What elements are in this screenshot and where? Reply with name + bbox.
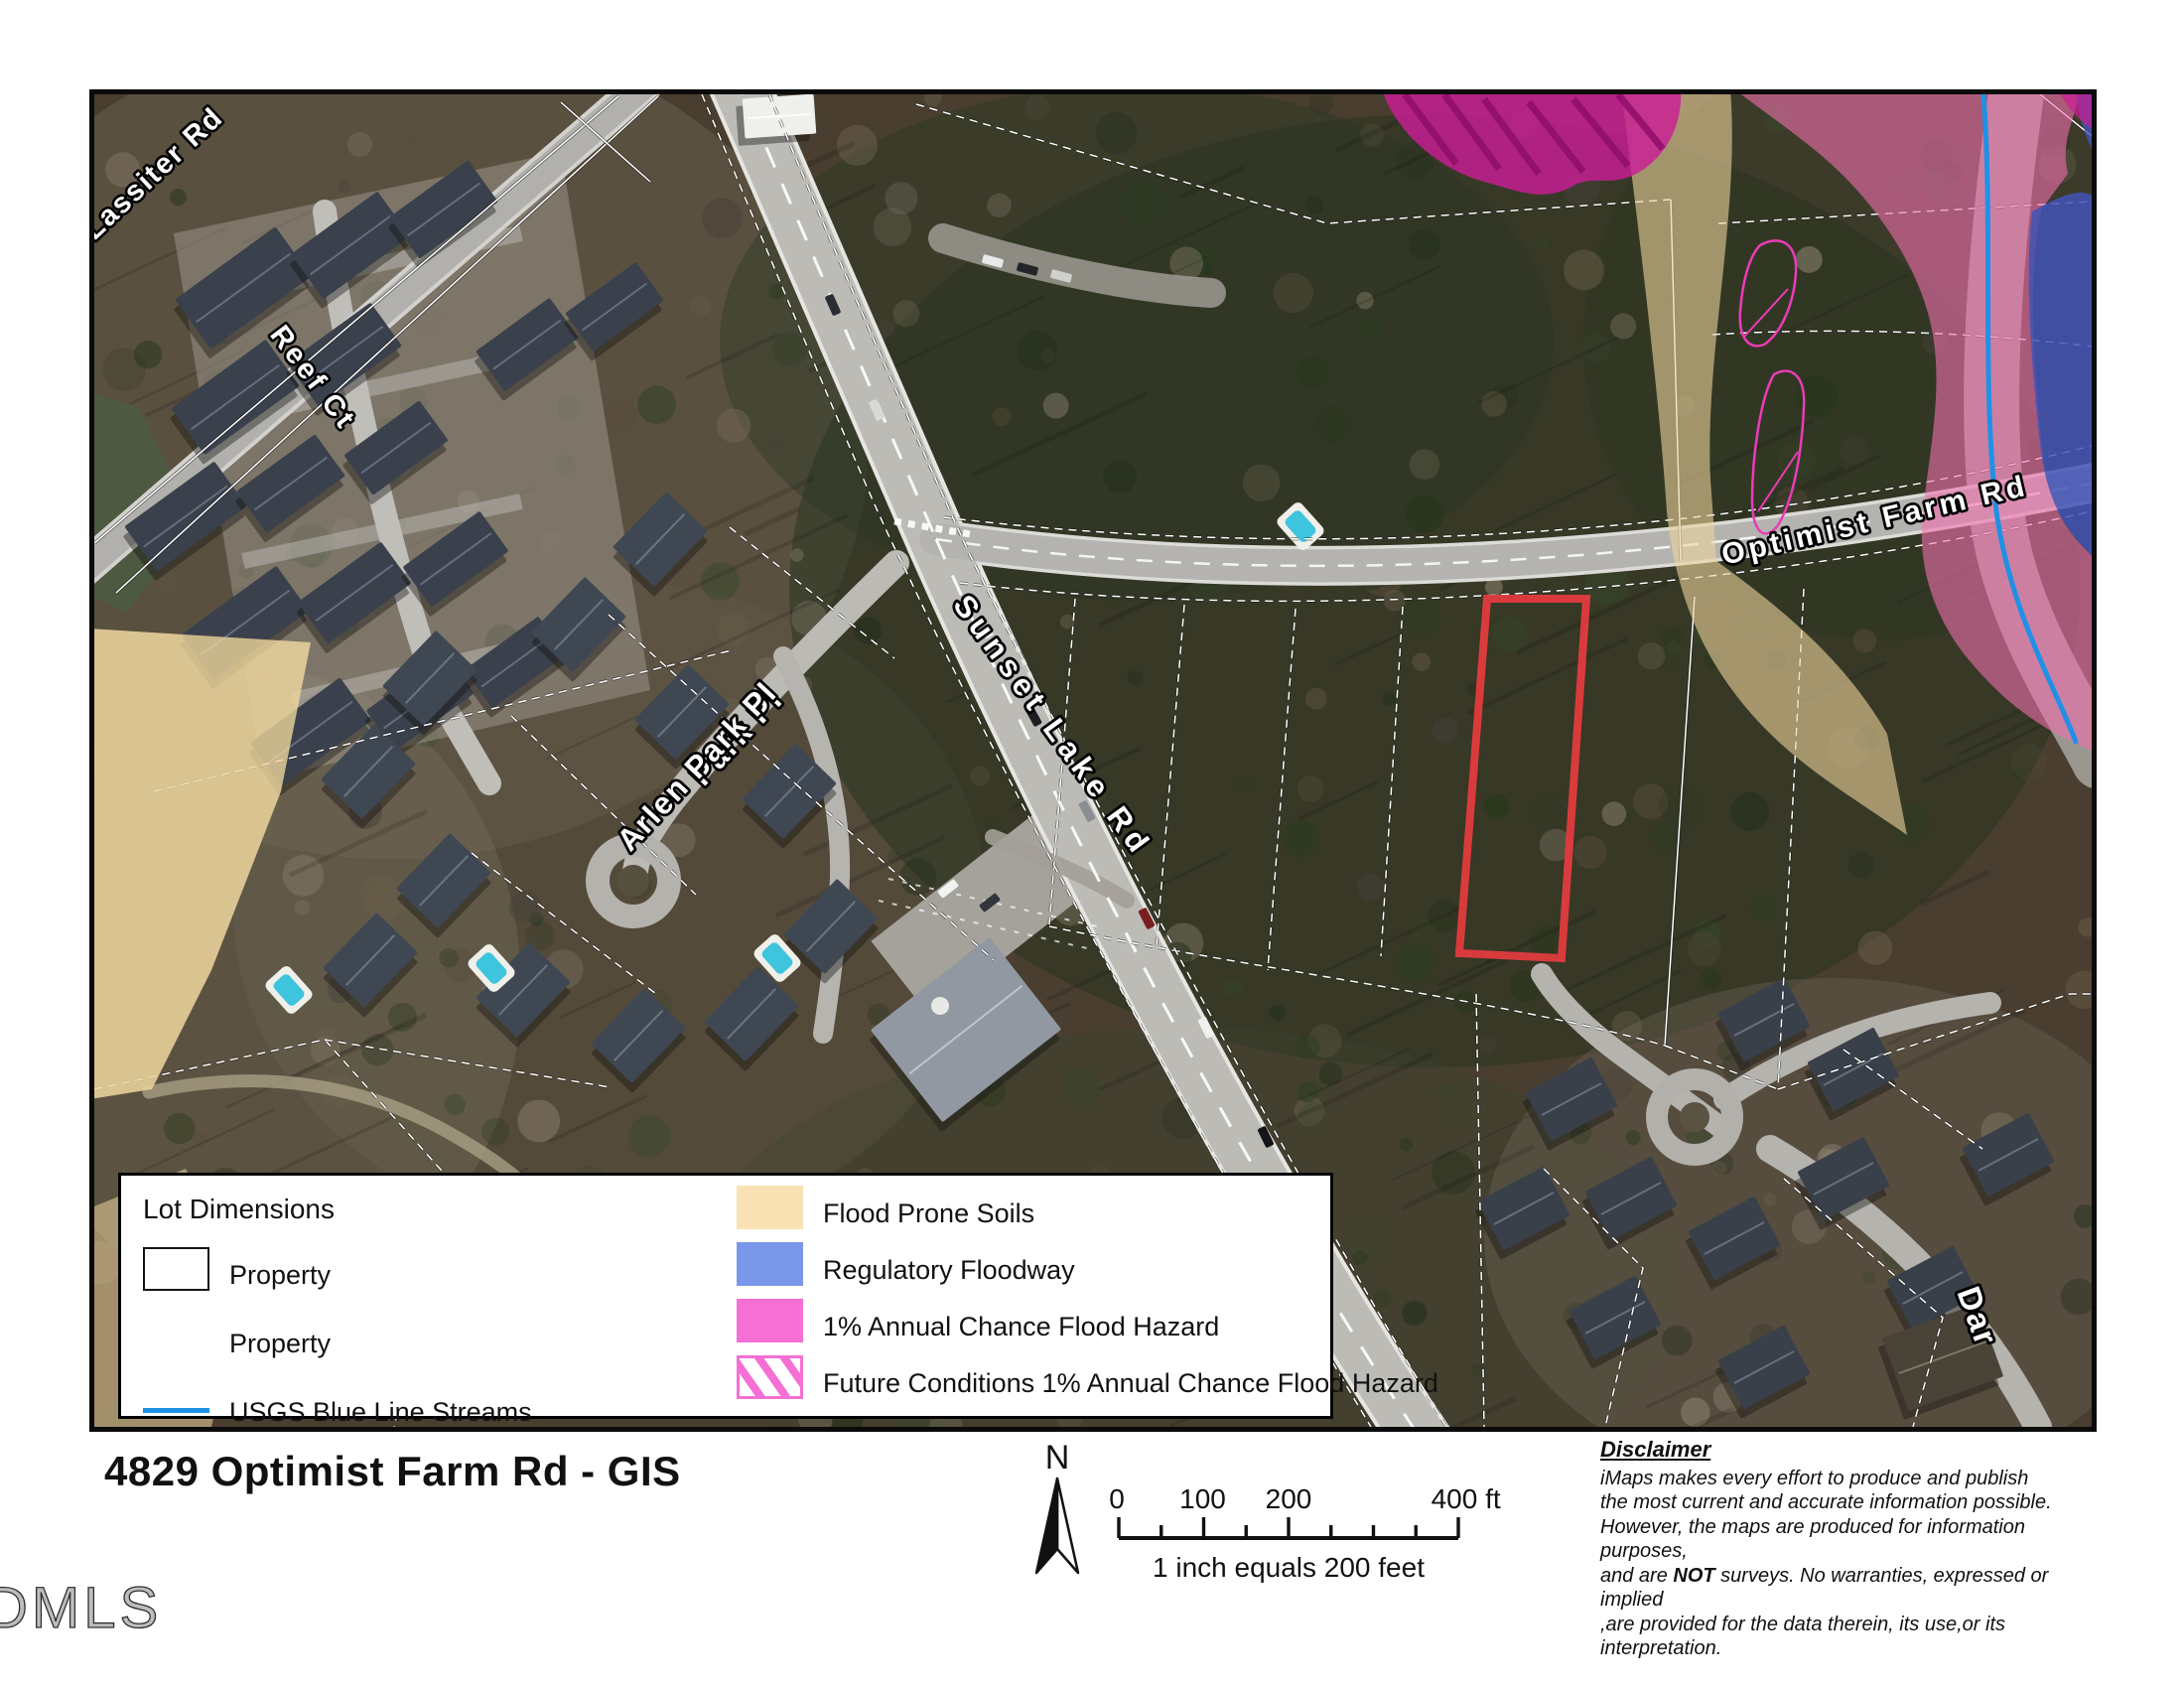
legend-item: Property <box>143 1316 532 1359</box>
legend-left-column: Lot Dimensions PropertyPropertyUSGS Blue… <box>143 1188 532 1432</box>
scale-bar-ticks <box>1117 1515 1460 1541</box>
legend-swatch-regulatory-floodway <box>737 1242 803 1286</box>
scale-bar: 0100200400 ft 1 inch equals 200 feet <box>1117 1483 1460 1584</box>
legend-swatch-usgs-blue-line-streams <box>143 1408 209 1413</box>
north-label: N <box>1032 1440 1082 1476</box>
scale-caption: 1 inch equals 200 feet <box>1117 1552 1460 1584</box>
legend-item: 1% Annual Chance Flood Hazard <box>737 1299 1438 1342</box>
disclaimer-line: ,are provided for the data therein, its … <box>1600 1613 2102 1661</box>
legend-label: Flood Prone Soils <box>823 1198 1034 1229</box>
disclaimer-line: the most current and accurate informatio… <box>1600 1490 2102 1515</box>
disclaimer-heading: Disclaimer <box>1600 1438 2102 1463</box>
legend-swatch-1-annual-chance-flood-hazard <box>737 1299 803 1342</box>
legend-label: Regulatory Floodway <box>823 1255 1075 1286</box>
legend-label: USGS Blue Line Streams <box>229 1397 532 1428</box>
legend-item: Flood Prone Soils <box>737 1186 1438 1229</box>
legend-swatch-flood-prone-soils <box>737 1186 803 1229</box>
disclaimer: Disclaimer iMaps makes every effort to p… <box>1600 1438 2102 1661</box>
legend-title: Lot Dimensions <box>143 1194 532 1225</box>
legend-item: USGS Blue Line Streams <box>143 1384 532 1428</box>
legend-swatch-future-conditions-1-annual-chance-flood-hazard <box>737 1355 803 1399</box>
disclaimer-line: iMaps makes every effort to produce and … <box>1600 1467 2102 1491</box>
scale-tick-label: 400 ft <box>1432 1483 1501 1515</box>
scale-tick-label: 200 <box>1266 1483 1312 1515</box>
legend-label: Future Conditions 1% Annual Chance Flood… <box>823 1368 1438 1399</box>
disclaimer-line: and are NOT surveys. No warranties, expr… <box>1600 1564 2102 1613</box>
legend-item: Future Conditions 1% Annual Chance Flood… <box>737 1355 1438 1399</box>
page-title: 4829 Optimist Farm Rd - GIS <box>104 1448 681 1495</box>
disclaimer-line: However, the maps are produced for infor… <box>1600 1515 2102 1564</box>
north-arrow-icon <box>1032 1476 1082 1577</box>
map-legend: Lot Dimensions PropertyPropertyUSGS Blue… <box>118 1173 1333 1419</box>
scale-labels: 0100200400 ft <box>1117 1483 1460 1515</box>
scale-tick-label: 0 <box>1109 1483 1125 1515</box>
legend-item: Property <box>143 1247 532 1291</box>
watermark-logo: DMLS <box>0 1575 162 1641</box>
legend-item: Regulatory Floodway <box>737 1242 1438 1286</box>
legend-right-column: Flood Prone SoilsRegulatory Floodway1% A… <box>737 1186 1438 1412</box>
legend-label: Property <box>229 1260 331 1291</box>
map-canvas: Lassiter RdReef CtPark PlArlen Park PlSu… <box>89 89 2097 1432</box>
legend-swatch-property <box>143 1247 209 1291</box>
scale-tick-label: 100 <box>1179 1483 1226 1515</box>
legend-label: Property <box>229 1329 331 1359</box>
north-arrow: N <box>1032 1440 1082 1582</box>
legend-label: 1% Annual Chance Flood Hazard <box>823 1312 1219 1342</box>
